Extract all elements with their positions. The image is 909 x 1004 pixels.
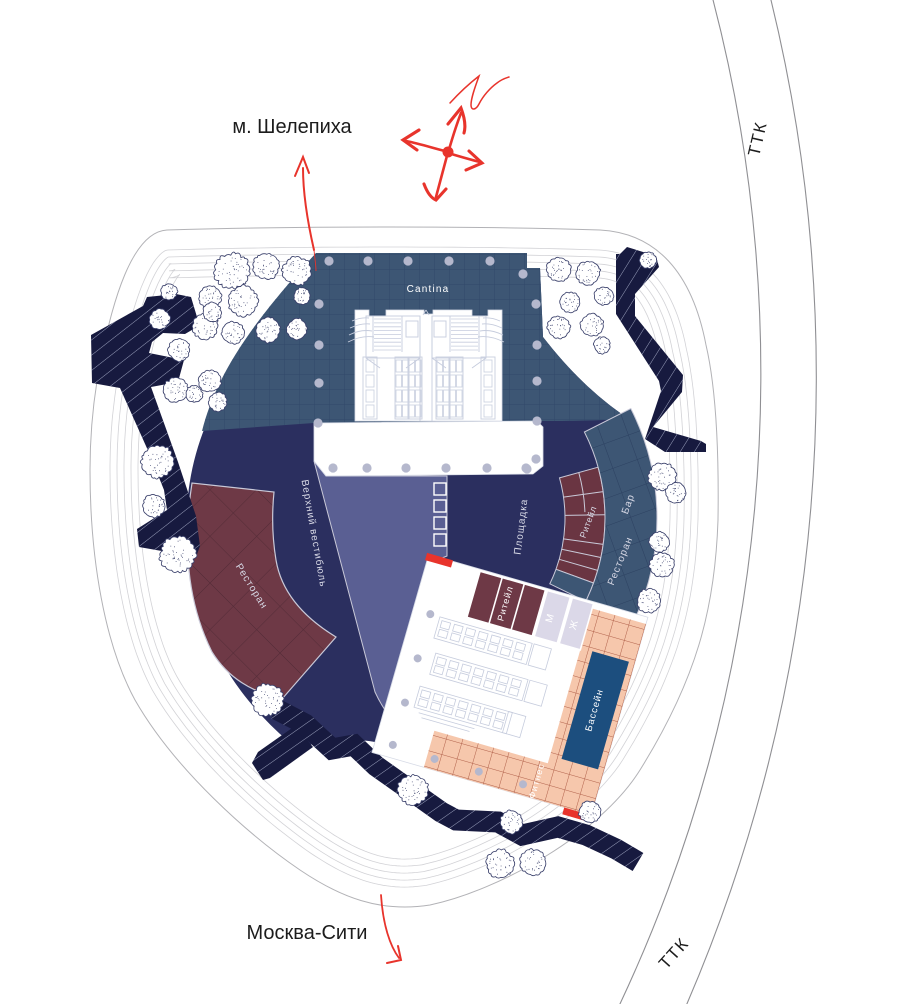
svg-text:ТТК: ТТК [655, 934, 693, 973]
svg-text:м. Шелепиха: м. Шелепиха [232, 116, 352, 138]
svg-text:Cantina: Cantina [407, 284, 450, 295]
svg-text:Москва-Сити: Москва-Сити [247, 922, 368, 944]
svg-text:ТТК: ТТК [744, 119, 770, 158]
